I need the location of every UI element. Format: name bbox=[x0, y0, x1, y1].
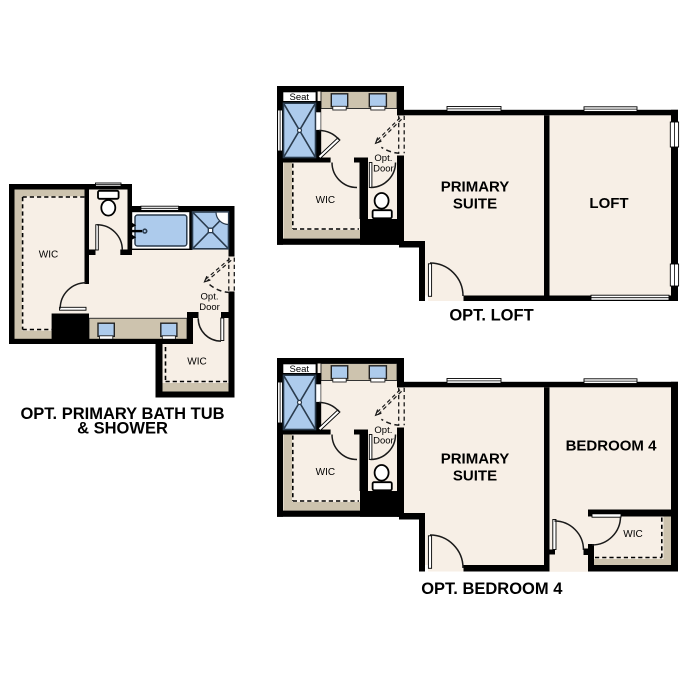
svg-text:WIC: WIC bbox=[39, 249, 58, 260]
svg-text:WIC: WIC bbox=[316, 195, 335, 206]
svg-text:PRIMARY: PRIMARY bbox=[441, 450, 510, 467]
svg-text:BEDROOM 4: BEDROOM 4 bbox=[566, 437, 658, 454]
svg-text:Opt.: Opt. bbox=[201, 292, 219, 303]
svg-text:OPT. LOFT: OPT. LOFT bbox=[449, 306, 533, 324]
svg-text:SUITE: SUITE bbox=[453, 195, 497, 212]
svg-text:Door: Door bbox=[199, 302, 220, 313]
svg-text:Door: Door bbox=[373, 436, 394, 447]
svg-text:PRIMARY: PRIMARY bbox=[441, 178, 510, 195]
svg-text:Opt.: Opt. bbox=[374, 153, 392, 164]
svg-text:Opt.: Opt. bbox=[374, 425, 392, 436]
svg-text:WIC: WIC bbox=[316, 467, 335, 478]
svg-text:SUITE: SUITE bbox=[453, 467, 497, 484]
svg-text:Door: Door bbox=[373, 164, 394, 175]
svg-text:OPT. BEDROOM 4: OPT. BEDROOM 4 bbox=[421, 580, 563, 598]
svg-text:& SHOWER: & SHOWER bbox=[77, 419, 168, 437]
svg-text:WIC: WIC bbox=[623, 529, 642, 540]
svg-text:LOFT: LOFT bbox=[589, 195, 628, 212]
svg-text:WIC: WIC bbox=[187, 357, 206, 368]
